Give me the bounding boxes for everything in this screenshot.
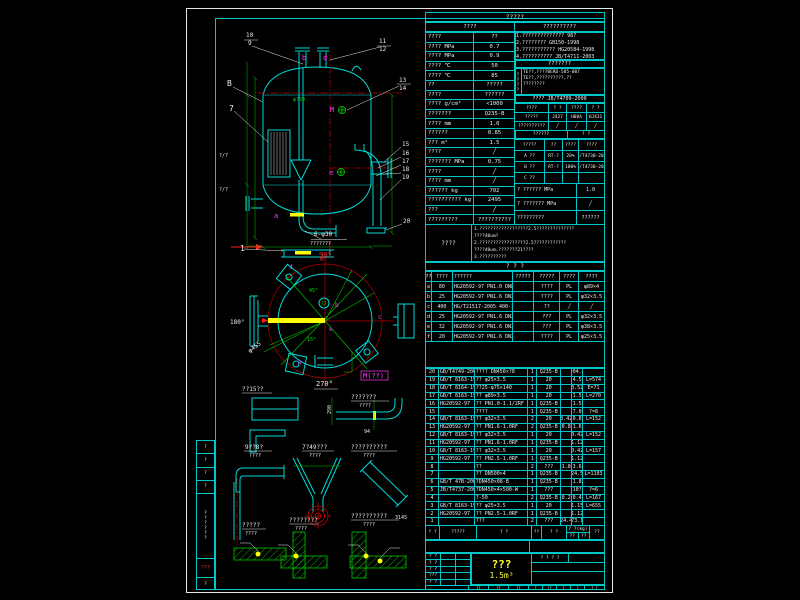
drawing-label: M: [330, 106, 334, 114]
drawing-label: 7: [229, 104, 234, 113]
drawing-label: ??????????: [351, 513, 388, 520]
drawing-label: 180°: [230, 319, 244, 326]
drawing-label: 0°: [320, 256, 327, 263]
drawing-label: B: [227, 79, 232, 88]
weld-tick: [373, 411, 376, 420]
drawing-label: ???????: [310, 241, 331, 247]
drawing-label: 7?49???: [302, 444, 328, 451]
drawing-label: ????: [249, 453, 261, 459]
vessel-drawing: 1091112B7131415161718192016-φ30???????90…: [0, 0, 800, 600]
drawing-label: ????: [309, 453, 321, 459]
drawing-label: 1: [240, 244, 245, 253]
drawing-label: 20: [403, 218, 411, 225]
drawing-label: 17: [402, 158, 410, 165]
drawing-label: ??????????: [351, 444, 388, 451]
drawing-label: ????????: [289, 517, 318, 524]
drawing-label: e: [329, 326, 333, 333]
drawing-label: ????: [363, 453, 375, 459]
drawing-label: 45°: [309, 288, 318, 294]
drawing-label: ??15??: [242, 386, 264, 393]
drawing-label: 11: [379, 38, 387, 45]
drawing-label: 10: [246, 32, 254, 39]
drawing-label: a: [298, 359, 302, 366]
nozzle-orientation-symbols: [338, 107, 346, 176]
drawing-label: 6-φ30: [314, 231, 332, 238]
drawing-label: 94: [364, 429, 370, 435]
drawing-label: 9: [248, 40, 252, 47]
drawing-label: 18: [402, 166, 410, 173]
drawing-label: φ455: [247, 340, 263, 355]
drawing-label: ????: [359, 403, 371, 409]
dimension-lines: [245, 62, 394, 250]
drawing-label: 290: [327, 405, 333, 414]
drawing-label: 270°: [316, 380, 333, 388]
drawing-label: b: [302, 54, 306, 62]
front-view: [246, 48, 391, 257]
drawing-label: c: [378, 314, 382, 321]
leader-lines: [233, 40, 411, 251]
cad-canvas[interactable]: ? ? ? ? ?????? ??? ? ????? ???? ????????…: [0, 0, 800, 600]
paddle-highlight: [268, 318, 325, 323]
drawing-label: 15: [402, 141, 410, 148]
gasket-highlight-2: [295, 251, 311, 255]
drawing-label: ????: [245, 531, 257, 537]
front-view-labels: 1091112B7131415161718192016-φ30???????90…: [219, 32, 411, 259]
drawing-label: 19: [402, 174, 410, 181]
drawing-label: a: [274, 212, 278, 220]
drawing-label: 16: [402, 150, 410, 157]
drawing-label: 9??8?: [245, 444, 263, 451]
drawing-label: ???????: [351, 394, 377, 401]
drawing-label: 12: [379, 46, 387, 53]
drawing-label: ?????: [242, 522, 260, 529]
gasket-highlight: [290, 213, 304, 217]
drawing-label: 3145: [395, 515, 407, 521]
drawing-label: d: [289, 264, 293, 271]
drawing-label: d: [323, 54, 327, 62]
drawing-label: b: [335, 302, 339, 309]
drawing-label: ?/?: [219, 153, 228, 159]
drawing-label: 13: [399, 77, 407, 84]
drawing-label: ????: [363, 522, 375, 528]
drawing-label: e: [329, 169, 333, 177]
weld-sections: [234, 532, 406, 578]
drawing-label: 14: [399, 85, 407, 92]
drawing-label: 15°: [307, 337, 316, 343]
plan-view: [250, 256, 414, 389]
drawing-label: φ?30: [293, 97, 305, 103]
drawing-label: ?/?: [219, 187, 228, 193]
drawing-label: M(??): [363, 372, 384, 380]
tube-bundle-lines: [271, 132, 286, 175]
drawing-label: ????: [295, 526, 307, 532]
